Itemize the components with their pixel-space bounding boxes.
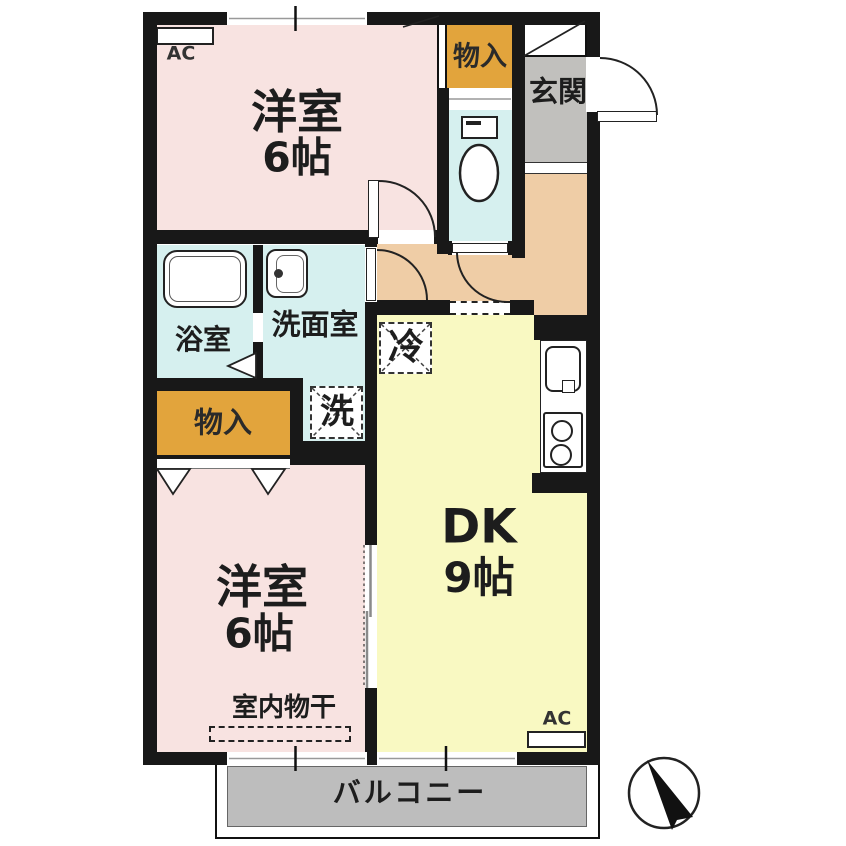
door-leaf-toilet bbox=[452, 243, 508, 253]
wall-toilet-west bbox=[437, 88, 449, 254]
wall-top bbox=[143, 12, 600, 25]
wall-kitchen-stub bbox=[532, 473, 587, 493]
floor-plan: 洋室 6帖 洋室 6帖 DK 9帖 浴室 洗面室 玄関 物入 物入 冷 洗 室内… bbox=[0, 0, 846, 846]
closet-mid-opening bbox=[157, 459, 290, 469]
closet-toilet-gap bbox=[449, 88, 512, 110]
label-ac-bottom: AC bbox=[543, 710, 572, 729]
label-washroom: 洗面室 bbox=[271, 311, 358, 340]
hallway-under-entrance bbox=[525, 174, 587, 244]
window-top bbox=[227, 12, 367, 25]
wall-bath-south bbox=[143, 378, 303, 391]
label-washer: 洗 bbox=[320, 395, 354, 429]
doorway-entrance bbox=[586, 57, 601, 112]
bath-door-gap bbox=[253, 313, 263, 342]
compass-icon bbox=[629, 758, 699, 830]
wall-hall-dk-right bbox=[534, 315, 600, 340]
door-leaf-entrance bbox=[597, 111, 657, 122]
door-arc-entrance bbox=[600, 58, 657, 115]
label-closet-top: 物入 bbox=[453, 44, 507, 71]
label-balcony: バルコニー bbox=[333, 779, 487, 807]
door-leaf-western-top bbox=[368, 180, 379, 238]
dk-entry-opening bbox=[450, 301, 510, 315]
wall-hall-dk-left bbox=[377, 300, 450, 315]
label-closet-middle: 物入 bbox=[194, 409, 252, 438]
label-ac-top: AC bbox=[167, 45, 196, 64]
label-western-bottom-name: 洋室 bbox=[216, 564, 308, 610]
bathtub-icon bbox=[163, 250, 247, 308]
wall-washroom-south bbox=[303, 441, 377, 465]
closet-top-partition bbox=[437, 25, 447, 88]
window-bottom-right bbox=[377, 752, 517, 765]
wall-toilet-east bbox=[512, 12, 525, 258]
ac-unit-bottom bbox=[527, 731, 586, 748]
label-dk-size: 9帖 bbox=[443, 557, 514, 599]
window-bottom-left bbox=[227, 752, 367, 765]
label-western-top-size: 6帖 bbox=[262, 138, 332, 179]
washbasin-icon bbox=[266, 249, 308, 298]
wall-right bbox=[587, 12, 600, 765]
label-fridge: 冷 bbox=[388, 330, 424, 366]
entrance-floor bbox=[525, 57, 587, 162]
label-bath: 浴室 bbox=[175, 326, 231, 354]
entrance-step bbox=[525, 162, 587, 174]
shoe-cabinet-icon bbox=[523, 20, 587, 57]
wall-closetmid-east bbox=[290, 391, 303, 465]
toilet-icon bbox=[461, 116, 498, 139]
label-indoor-drying: 室内物干 bbox=[232, 695, 336, 721]
label-entrance: 玄関 bbox=[529, 78, 587, 107]
door-leaf-washroom bbox=[366, 248, 376, 301]
doorway-western-top bbox=[378, 230, 434, 244]
indoor-drying-area bbox=[209, 726, 351, 742]
faucet-icon bbox=[562, 380, 575, 393]
label-western-bottom-size: 6帖 bbox=[224, 614, 294, 655]
label-western-top-name: 洋室 bbox=[251, 89, 343, 135]
stove-icon bbox=[543, 412, 583, 468]
wall-hall-dk-mid bbox=[510, 300, 534, 315]
label-dk-name: DK bbox=[441, 504, 516, 551]
